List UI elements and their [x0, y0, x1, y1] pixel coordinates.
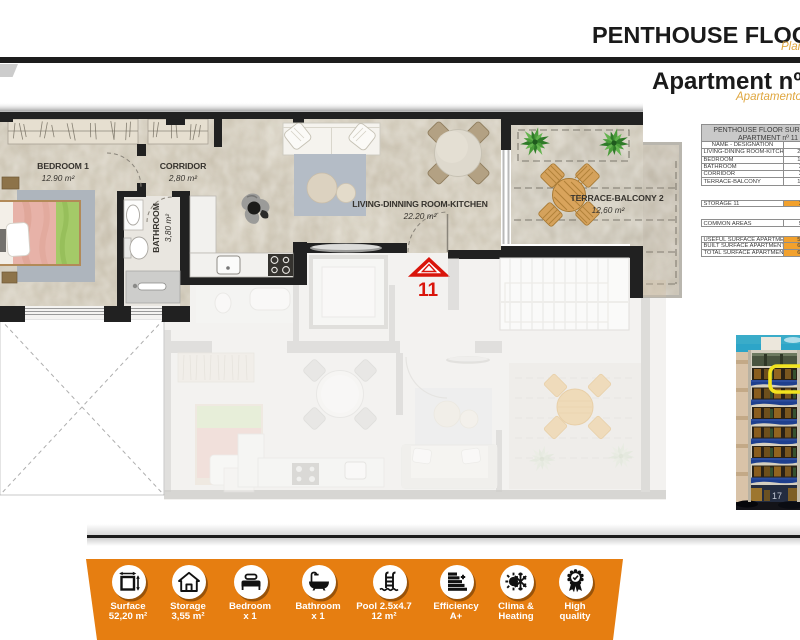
svg-text:12.90 m²: 12.90 m² — [42, 173, 75, 183]
svg-text:11: 11 — [418, 280, 439, 301]
svg-text:BEDROOM 1: BEDROOM 1 — [37, 161, 89, 171]
svg-text:3,80 m²: 3,80 m² — [163, 214, 173, 242]
svg-text:22.20 m²: 22.20 m² — [403, 211, 437, 221]
svg-text:2,80 m²: 2,80 m² — [168, 173, 197, 183]
svg-text:CORRIDOR: CORRIDOR — [160, 161, 207, 171]
svg-text:LIVING-DINNING ROOM-KITCHEN: LIVING-DINNING ROOM-KITCHEN — [352, 199, 487, 209]
svg-text:BATHROOM: BATHROOM — [151, 203, 161, 253]
svg-text:12,60 m²: 12,60 m² — [592, 205, 625, 215]
svg-text:17: 17 — [772, 491, 782, 501]
svg-text:TERRACE-BALCONY 2: TERRACE-BALCONY 2 — [570, 193, 663, 203]
